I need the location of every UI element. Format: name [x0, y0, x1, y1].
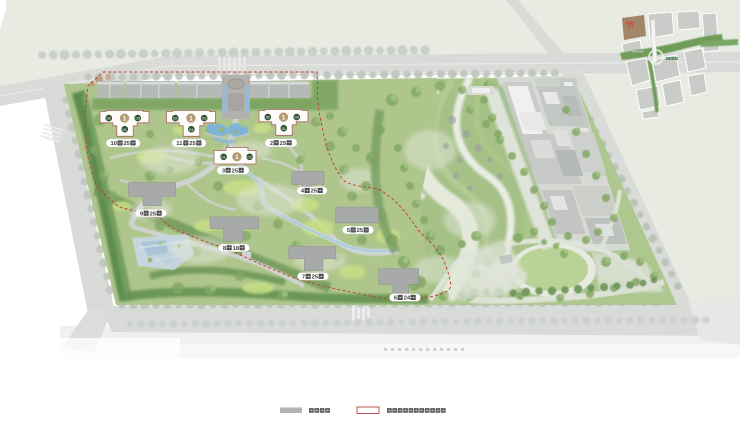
svg-text:25: 25	[357, 228, 364, 234]
svg-text:25: 25	[150, 211, 157, 217]
svg-text:01: 01	[123, 127, 128, 132]
svg-text:25: 25	[232, 168, 239, 174]
svg-text:7: 7	[302, 275, 305, 281]
svg-text:25: 25	[189, 141, 196, 147]
svg-text:03: 03	[135, 116, 140, 121]
svg-text:25: 25	[124, 141, 131, 147]
svg-text:2: 2	[270, 141, 273, 147]
svg-text:02: 02	[173, 116, 178, 121]
svg-text:1: 1	[235, 154, 239, 161]
svg-text:01: 01	[221, 154, 226, 159]
svg-text:02: 02	[266, 115, 271, 120]
svg-text:03: 03	[294, 115, 299, 120]
svg-text:25: 25	[312, 275, 319, 281]
svg-text:02: 02	[107, 116, 112, 121]
svg-text:1: 1	[123, 115, 127, 122]
svg-text:01: 01	[282, 126, 287, 131]
svg-text:03: 03	[202, 116, 207, 121]
svg-text:1: 1	[282, 114, 286, 121]
svg-text:01: 01	[189, 127, 194, 132]
svg-text:24: 24	[404, 296, 411, 302]
svg-text:10: 10	[111, 141, 117, 147]
svg-text:02: 02	[247, 154, 252, 159]
svg-text:1: 1	[189, 115, 193, 122]
svg-text:11: 11	[176, 141, 183, 147]
svg-text:25: 25	[280, 141, 287, 147]
svg-text:25: 25	[311, 189, 318, 195]
svg-text:18: 18	[233, 246, 240, 252]
